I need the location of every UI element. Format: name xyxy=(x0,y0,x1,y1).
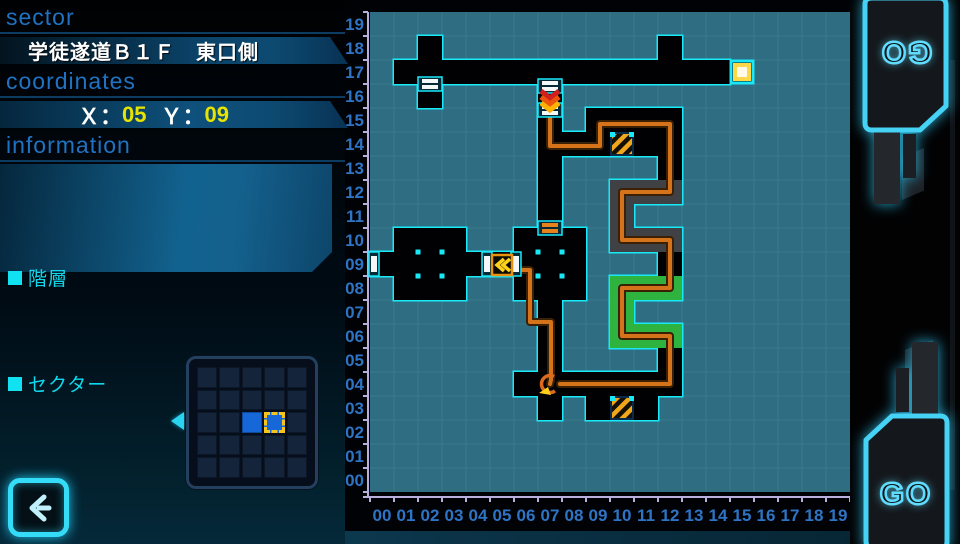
coord-x-label: Ｘ： xyxy=(78,99,122,131)
minimap-cell xyxy=(264,457,284,478)
room-dot xyxy=(560,274,565,279)
corridor-dark xyxy=(394,228,466,300)
minimap-cell xyxy=(242,435,262,456)
y-axis-label: 16 xyxy=(345,87,364,106)
sector-bullet-icon xyxy=(8,377,22,391)
x-axis-label: 13 xyxy=(685,506,704,525)
minimap-cell xyxy=(219,390,239,411)
coord-y-label: Ｙ： xyxy=(161,99,205,131)
go-button-frame xyxy=(856,342,956,544)
minimap-cell xyxy=(219,435,239,456)
floor-label: 階層 xyxy=(28,264,68,291)
door-bar xyxy=(513,256,519,272)
go-button-label: GO xyxy=(856,34,956,70)
corridor-dark xyxy=(538,396,562,420)
x-axis-label: 18 xyxy=(805,506,824,525)
door-bar xyxy=(422,79,438,83)
x-axis-label: 07 xyxy=(541,506,560,525)
x-axis-label: 19 xyxy=(829,506,848,525)
minimap-cell xyxy=(287,457,307,478)
go-button-frame xyxy=(856,0,956,204)
x-axis-label: 17 xyxy=(781,506,800,525)
minimap-cell xyxy=(242,412,262,433)
y-axis-label: 02 xyxy=(345,423,364,442)
x-axis-label: 16 xyxy=(757,506,776,525)
minimap-cell-selected[interactable] xyxy=(264,412,284,433)
y-axis-label: 19 xyxy=(345,15,364,34)
x-axis-label: 00 xyxy=(373,506,392,525)
minimap-cell xyxy=(287,367,307,388)
door-bar xyxy=(542,229,558,233)
door-bar xyxy=(542,87,558,91)
x-axis-label: 02 xyxy=(421,506,440,525)
sector-title-bar: 学徒遂道Ｂ１Ｆ 東口側 xyxy=(0,37,348,64)
x-axis-label: 15 xyxy=(733,506,752,525)
x-axis-label: 12 xyxy=(661,506,680,525)
minimap-cell xyxy=(197,457,217,478)
go-button-top[interactable]: GO xyxy=(856,0,956,204)
door-bar xyxy=(422,85,438,89)
information-panel xyxy=(0,164,332,272)
y-axis-label: 09 xyxy=(345,255,364,274)
door-bar xyxy=(371,256,377,272)
sector-label-row: セクター xyxy=(8,370,107,397)
minimap-cell xyxy=(197,390,217,411)
y-axis-label: 01 xyxy=(345,447,364,466)
minimap-cell xyxy=(287,435,307,456)
y-axis-label: 08 xyxy=(345,279,364,298)
x-axis-label: 09 xyxy=(589,506,608,525)
y-axis-label: 03 xyxy=(345,399,364,418)
door-bar xyxy=(484,256,490,272)
back-button[interactable] xyxy=(8,478,69,537)
left-info-panel: sector 学徒遂道Ｂ１Ｆ 東口側 coordinates Ｘ： 05 Ｙ： … xyxy=(0,0,345,544)
x-axis-label: 04 xyxy=(469,506,488,525)
x-axis-label: 10 xyxy=(613,506,632,525)
minimap-cell xyxy=(197,367,217,388)
room-dot xyxy=(416,274,421,279)
coordinates-header: coordinates xyxy=(0,64,345,98)
x-axis-label: 01 xyxy=(397,506,416,525)
y-axis-label: 15 xyxy=(345,111,364,130)
minimap-cell xyxy=(264,367,284,388)
minimap-cell xyxy=(197,412,217,433)
minimap-cell xyxy=(287,412,307,433)
room-dot xyxy=(536,274,541,279)
x-axis-label: 05 xyxy=(493,506,512,525)
map-screen: 0001020304050607080910111213141516171819… xyxy=(0,0,960,544)
door-bar xyxy=(542,81,558,85)
minimap-cell xyxy=(264,435,284,456)
room-dot xyxy=(416,250,421,255)
floor-label-row: 階層 xyxy=(8,264,68,291)
y-axis-label: 00 xyxy=(345,471,364,490)
sector-minimap[interactable] xyxy=(186,356,318,489)
hazard-corner-dot xyxy=(629,132,634,137)
room-dot xyxy=(440,274,445,279)
go-button-bottom[interactable]: GO xyxy=(856,342,956,544)
corridor-dark xyxy=(514,228,586,300)
y-axis-label: 17 xyxy=(345,63,364,82)
information-header: information xyxy=(0,128,345,162)
right-control-strip: GO GO xyxy=(850,0,960,544)
corridor-dark xyxy=(418,36,442,60)
coordinates-bar: Ｘ： 05 Ｙ： 09 xyxy=(0,101,348,128)
y-axis-label: 18 xyxy=(345,39,364,58)
y-axis-label: 12 xyxy=(345,183,364,202)
floor-bullet-icon xyxy=(8,271,22,285)
corridor-dark xyxy=(658,36,682,60)
coord-x-value: 05 xyxy=(122,102,146,128)
coord-y-value: 09 xyxy=(205,102,229,128)
y-axis-label: 11 xyxy=(346,207,364,226)
hazard-corner-dot xyxy=(629,396,634,401)
x-axis-label: 06 xyxy=(517,506,536,525)
x-axis-label: 03 xyxy=(445,506,464,525)
sector-header: sector xyxy=(0,0,345,34)
y-axis-label: 05 xyxy=(345,351,364,370)
minimap-cell xyxy=(242,367,262,388)
room-dot xyxy=(440,250,445,255)
x-axis-label: 08 xyxy=(565,506,584,525)
minimap-cell xyxy=(219,457,239,478)
room-dot xyxy=(560,250,565,255)
back-arrow-icon xyxy=(19,488,59,528)
sector-title: 学徒遂道Ｂ１Ｆ 東口側 xyxy=(0,36,259,65)
minimap-cell xyxy=(219,367,239,388)
minimap-cell xyxy=(242,390,262,411)
sector-label: セクター xyxy=(28,370,107,397)
exit-tile-core xyxy=(735,65,749,79)
minimap-cell xyxy=(242,457,262,478)
minimap-cell xyxy=(197,435,217,456)
y-axis-label: 13 xyxy=(345,159,364,178)
y-axis-label: 10 xyxy=(345,231,364,250)
room-dot xyxy=(536,250,541,255)
y-axis-label: 06 xyxy=(345,327,364,346)
go-button-label: GO xyxy=(856,476,956,512)
y-axis-label: 04 xyxy=(345,375,364,394)
minimap-cell xyxy=(287,390,307,411)
hazard-corner-dot xyxy=(610,396,615,401)
hazard-corner-dot xyxy=(610,132,615,137)
x-axis-label: 14 xyxy=(709,506,728,525)
x-axis-label: 11 xyxy=(637,506,655,525)
minimap-left-arrow-icon[interactable] xyxy=(171,412,184,430)
y-axis-label: 07 xyxy=(345,303,364,322)
minimap-cell xyxy=(264,390,284,411)
y-axis-label: 14 xyxy=(345,135,364,154)
door-bar xyxy=(542,223,558,227)
minimap-cell xyxy=(219,412,239,433)
